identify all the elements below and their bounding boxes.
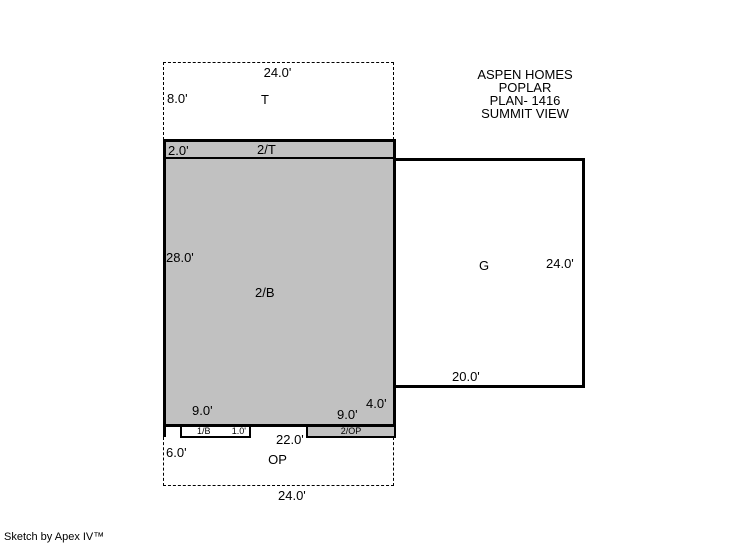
attic-width-dim: 24.0' xyxy=(163,66,392,80)
porch-bottom-width-dim: 24.0' xyxy=(278,489,306,503)
upper-band-area-label: 2/T xyxy=(257,143,276,157)
upper-band-outline: 2.0' 2/T xyxy=(166,142,393,159)
garage-height-dim: 24.0' xyxy=(546,257,574,271)
strip-1b-label: 1/B xyxy=(197,427,211,436)
porch-top-width-dim: 22.0' xyxy=(276,433,304,447)
left-corner-stub xyxy=(163,427,166,437)
garage-area-label: G xyxy=(479,259,489,273)
main-area-label: 2/B xyxy=(255,286,275,300)
title-block: ASPEN HOMES POPLAR PLAN- 1416 SUMMIT VIE… xyxy=(440,68,610,120)
strip-1b-depth-dim: 1.0' xyxy=(232,427,246,436)
title-line-4: SUMMIT VIEW xyxy=(440,107,610,120)
right-step-dim: 4.0' xyxy=(366,397,387,411)
attic-height-dim: 8.0' xyxy=(167,92,188,106)
garage-width-dim: 20.0' xyxy=(452,370,480,384)
bottom-right-dim: 9.0' xyxy=(337,408,358,422)
strip-2op-label: 2/OP xyxy=(308,427,394,436)
attic-area-label: T xyxy=(240,93,290,107)
floor-plan-sketch: 24.0' 8.0' T 2.0' 2/T 28.0' 2/B 9.0' 9.0… xyxy=(0,0,746,547)
upper-band-height-dim: 2.0' xyxy=(168,144,189,158)
sketch-credit: Sketch by Apex IV™ xyxy=(4,531,104,543)
garage-outline xyxy=(393,158,585,388)
main-height-dim: 28.0' xyxy=(166,251,194,265)
main-area-outline: 2.0' 2/T xyxy=(163,139,396,427)
porch-area-label: OP xyxy=(163,453,392,467)
bottom-left-dim: 9.0' xyxy=(192,404,213,418)
